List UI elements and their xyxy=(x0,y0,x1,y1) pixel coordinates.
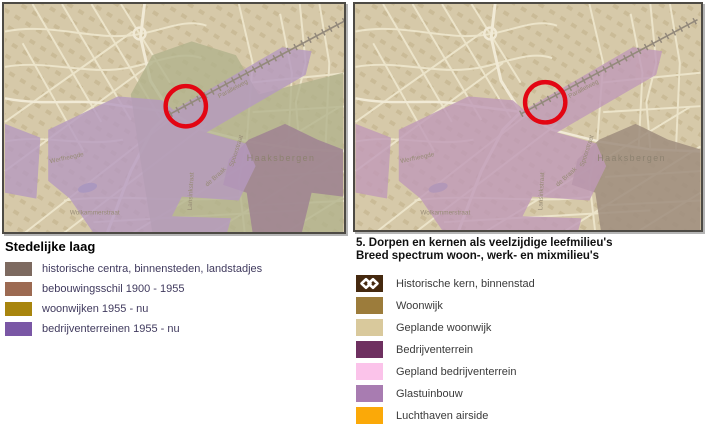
color-swatch-bebouwingsschil xyxy=(5,282,32,296)
legend-item: bedrijventerreinen 1955 - nu xyxy=(5,322,340,336)
legend-item-label: Luchthaven airside xyxy=(396,410,488,422)
legend-item-label: Historische kern, binnenstad xyxy=(396,278,535,290)
legend-item-label: Bedrijventerrein xyxy=(396,344,473,356)
legend-item: Gepland bedrijventerrein xyxy=(356,363,703,380)
legend-item-label: Gepland bedrijventerrein xyxy=(396,366,516,378)
legend-item: Historische kern, binnenstad xyxy=(356,275,703,292)
legend-title: Stedelijke laag xyxy=(5,239,340,254)
color-swatch-bedrijventerreinen xyxy=(5,322,32,336)
map-image-stedelijke-laag: Haaksbergen Parallelweg Werfheegde Spoor… xyxy=(4,4,344,232)
legend-item-label: Glastuinbouw xyxy=(396,388,463,400)
legend-item-label: historische centra, binnensteden, landst… xyxy=(42,263,262,275)
legend-item: Bedrijventerrein xyxy=(356,341,703,358)
map-label-town: Haaksbergen xyxy=(247,153,316,163)
legend-item: Glastuinbouw xyxy=(356,385,703,402)
color-swatch-woonwijk xyxy=(356,297,383,314)
map-label-town: Haaksbergen xyxy=(597,153,666,163)
legend-item-label: woonwijken 1955 - nu xyxy=(42,303,148,315)
legend-item: Woonwijk xyxy=(356,297,703,314)
map-label-wolkammerstraat: Wolkammerstraat xyxy=(70,209,120,216)
color-swatch-historische-centra xyxy=(5,262,32,276)
color-swatch-geplande-woonwijk xyxy=(356,319,383,336)
legend-item-label: Woonwijk xyxy=(396,300,443,312)
legend-stedelijke-laag: Stedelijke laag historische centra, binn… xyxy=(5,239,340,342)
legend-item-label: bedrijventerreinen 1955 - nu xyxy=(42,323,180,335)
legend-title-line1: 5. Dorpen en kernen als veelzijdige leef… xyxy=(356,237,703,250)
map-image-leefmilieus: Haaksbergen Parallelweg Werfheegde Spoor… xyxy=(355,4,701,230)
chain-links-icon xyxy=(356,275,383,292)
color-swatch-historische-kern xyxy=(356,275,383,292)
color-swatch-gepland-bedrijventerrein xyxy=(356,363,383,380)
color-swatch-luchthaven-airside xyxy=(356,407,383,424)
legend-item: Geplande woonwijk xyxy=(356,319,703,336)
legend-title-line2: Breed spectrum woon-, werk- en mixmilieu… xyxy=(356,250,703,263)
legend-item-label: Geplande woonwijk xyxy=(396,322,491,334)
legend-item: historische centra, binnensteden, landst… xyxy=(5,262,340,276)
color-swatch-bedrijventerrein xyxy=(356,341,383,358)
legend-item-label: bebouwingsschil 1900 - 1955 xyxy=(42,283,185,295)
legend-item: bebouwingsschil 1900 - 1955 xyxy=(5,282,340,296)
legend-items: Historische kern, binnenstad Woonwijk Ge… xyxy=(356,275,703,424)
map-panel-right: Haaksbergen Parallelweg Werfheegde Spoor… xyxy=(353,2,703,232)
map-panel-left: Haaksbergen Parallelweg Werfheegde Spoor… xyxy=(2,2,346,234)
color-swatch-glastuinbouw xyxy=(356,385,383,402)
legend-leefmilieus: 5. Dorpen en kernen als veelzijdige leef… xyxy=(356,237,703,429)
color-swatch-woonwijken xyxy=(5,302,32,316)
legend-item: woonwijken 1955 - nu xyxy=(5,302,340,316)
map-label-wolkammerstraat: Wolkammerstraat xyxy=(420,209,470,216)
legend-item: Luchthaven airside xyxy=(356,407,703,424)
